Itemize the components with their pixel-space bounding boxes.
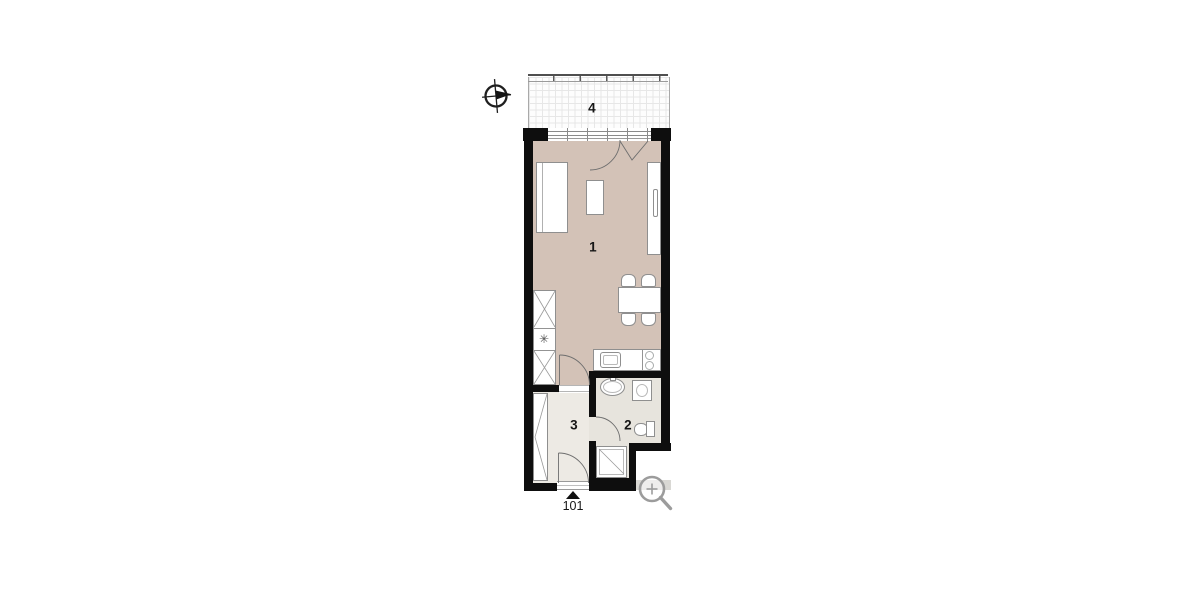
room-label-hallway: 3 [570, 418, 578, 433]
unit-number-label: 101 [563, 499, 584, 513]
wall-hall-divider [524, 385, 559, 392]
washing-machine [632, 380, 652, 401]
room-label-balcony: 4 [588, 101, 596, 116]
shower-tray [596, 446, 627, 478]
room-label-living: 1 [589, 240, 597, 255]
dining-chair [621, 274, 636, 287]
room-label-bathroom: 2 [624, 418, 632, 433]
wall-recess-top [629, 443, 671, 451]
shower-tray-rim [599, 449, 624, 475]
wall-pillar-top-left [523, 128, 548, 141]
dining-table [618, 287, 661, 313]
washing-machine-drum [636, 384, 648, 397]
cabinet-divider [534, 328, 555, 329]
wall-bathroom-top [589, 371, 670, 378]
cooktop-burner [645, 351, 654, 360]
exterior-paving-strip [634, 480, 671, 490]
cooktop-burner [645, 361, 654, 370]
toilet-cistern [646, 421, 655, 437]
hall-wardrobe [533, 393, 548, 481]
tv-screen [653, 189, 658, 217]
balcony-railing [528, 74, 668, 82]
kitchen-sink [600, 352, 621, 368]
wall-bottom-left [524, 483, 557, 491]
dining-chair [641, 274, 656, 287]
exterior-recess [636, 451, 661, 480]
dining-chair [641, 313, 656, 326]
living-hall-door-threshold [559, 385, 589, 393]
kitchen-sink-basin [603, 355, 618, 365]
dining-chair [621, 313, 636, 326]
cabinet-divider [534, 350, 555, 351]
desk [586, 180, 604, 215]
bathroom-sink-basin [603, 381, 622, 393]
wall-bathroom-left-upper [589, 371, 596, 417]
wall-left [524, 128, 533, 491]
fridge-symbol: ✳ [539, 333, 549, 345]
bed-pillow-line [542, 163, 543, 232]
floor-plan-canvas: ✳ [0, 0, 1200, 600]
wall-pillar-top-right [651, 128, 671, 141]
north-compass-icon [481, 78, 513, 114]
bathroom-door-opening [589, 417, 596, 441]
counter-divider [642, 350, 643, 370]
bed [536, 162, 568, 233]
wall-right [661, 128, 670, 443]
entrance-arrow-icon [566, 491, 580, 499]
balcony-window-band [548, 128, 651, 141]
balcony-floor [528, 77, 670, 128]
